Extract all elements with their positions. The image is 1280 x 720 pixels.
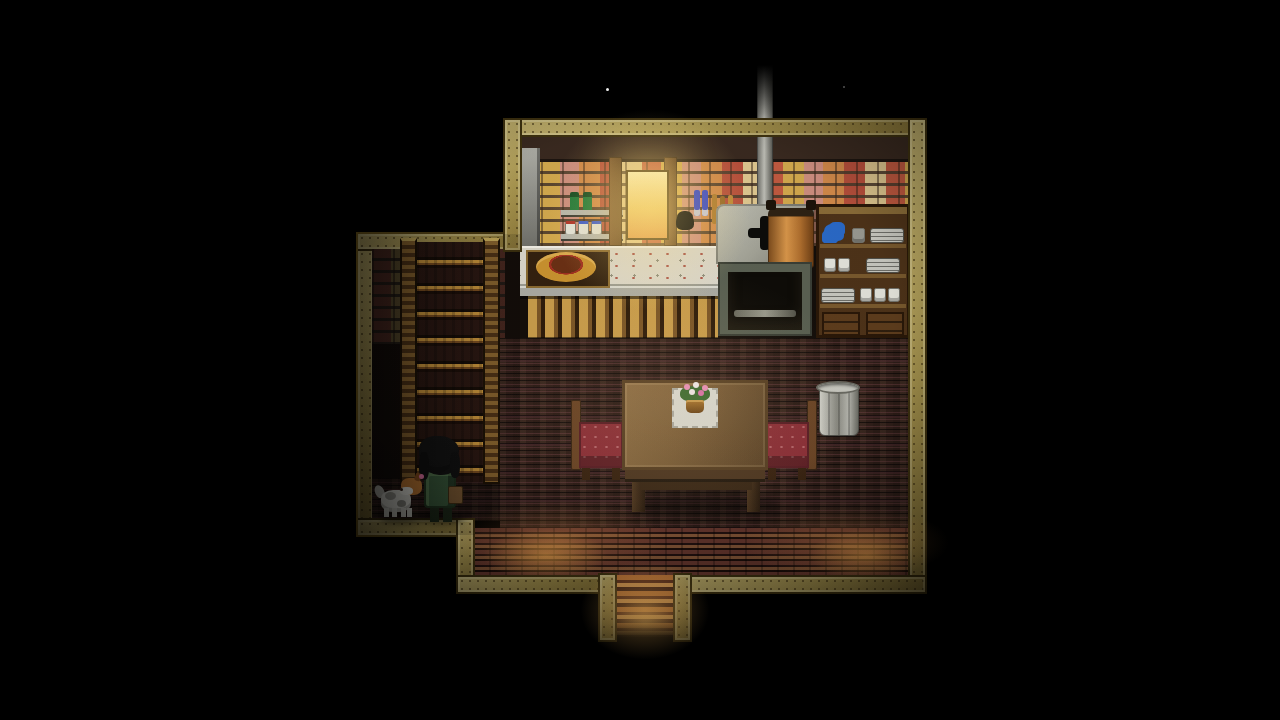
pet-patch-1: [385, 492, 396, 500]
hearth-grate: [734, 310, 796, 317]
chimney-fade: [755, 58, 775, 118]
pet-nose: [400, 488, 403, 491]
table-apron: [625, 470, 765, 482]
character-hair-lock-right: [450, 452, 460, 478]
plate-stack-3: [821, 288, 855, 303]
kitchen-window: [626, 170, 669, 240]
door-pillar-left: [600, 575, 615, 640]
cabinet-door-left: [822, 312, 860, 336]
wall-frame-bottom-right: [687, 577, 925, 592]
pet-legs: [384, 508, 389, 517]
white-cup-1: [824, 258, 836, 272]
lower-cabinet: [528, 296, 718, 340]
chair-right-cushion: [765, 422, 809, 468]
copper-kettle: [768, 208, 814, 268]
wall-frame-left-upper: [505, 120, 520, 250]
flower-pot: [686, 400, 704, 413]
dish-shelf-3: [820, 304, 906, 308]
chair-left-legs: [582, 468, 590, 480]
star-faint: [843, 86, 845, 88]
game-viewport[interactable]: [0, 0, 1280, 720]
bread-basket: [536, 252, 596, 282]
flower-blossoms: [684, 384, 690, 390]
metal-locker: [520, 148, 540, 246]
chair-right-legs: [768, 468, 776, 480]
character-shadow: [420, 512, 464, 524]
plate-stack-1: [870, 228, 904, 243]
pet-bow: [419, 474, 424, 479]
door-pillar-right: [675, 575, 690, 640]
pet-patch-2: [397, 500, 406, 507]
wall-frame-right: [910, 120, 925, 592]
kettle-handle-left: [766, 200, 776, 210]
table-stretcher: [640, 482, 752, 490]
wall-frame-wing-left: [358, 234, 373, 535]
character-satchel: [448, 486, 463, 504]
chair-left-cushion: [579, 422, 623, 468]
stair-rail-left: [400, 238, 417, 484]
white-cup-2: [838, 258, 850, 272]
stove-hearth-opening: [728, 272, 802, 330]
doorstep-fade: [615, 620, 675, 640]
dish-shelf-1: [820, 244, 906, 248]
front-wall-band: [473, 528, 910, 577]
wall-frame-top: [505, 120, 925, 135]
stair-rail-right: [483, 238, 500, 484]
wall-frame-bottom-left: [458, 577, 603, 592]
dish-shelf-2: [820, 274, 906, 278]
kettle-black: [676, 214, 694, 230]
knife-blue-2: [702, 190, 708, 216]
cabinet-door-right: [866, 312, 904, 336]
white-cup-3: [860, 288, 872, 302]
knife-blue-1: [694, 190, 700, 216]
white-cup-5: [888, 288, 900, 302]
wall-upper-band: [520, 135, 910, 162]
star-bright: [606, 88, 609, 91]
bin-rim: [816, 381, 860, 394]
white-cup-4: [874, 288, 886, 302]
plate-stack-2: [866, 258, 900, 273]
wall-beam-left: [609, 157, 622, 246]
teapot-blue: [824, 224, 844, 241]
kettle-handle-right: [806, 200, 816, 210]
gray-cup: [852, 228, 865, 243]
